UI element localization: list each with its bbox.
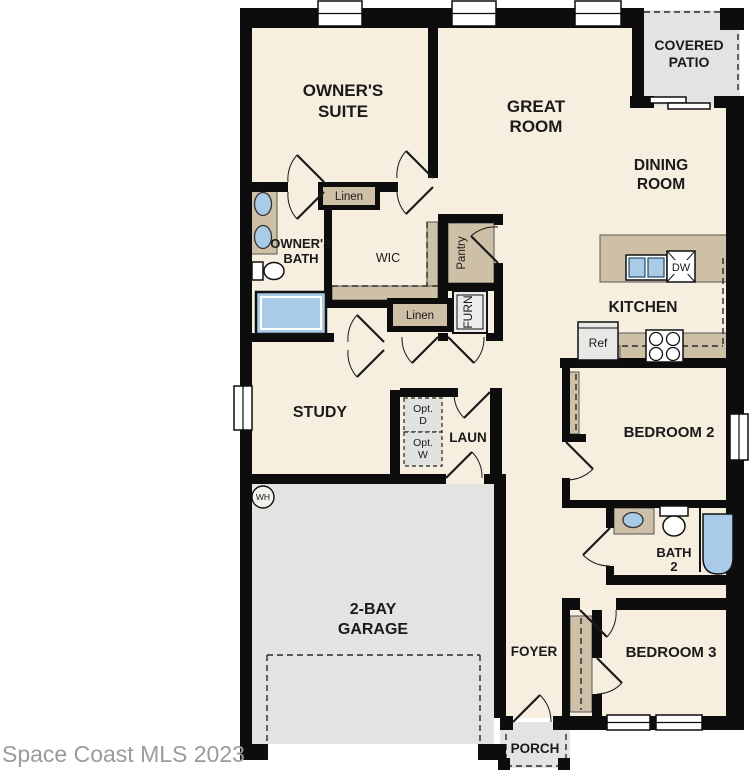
sliding-door [668,103,710,109]
room-label-owners-bath: OWNER'S [270,236,332,251]
dishwasher-label: DW [672,262,691,274]
burner [650,348,663,361]
room-label-bedroom2: BEDROOM 2 [624,424,715,441]
toilet-bowl [264,263,284,280]
room-label-dining-room-2: ROOM [637,176,685,193]
floorplan-image: OWNER'S SUITE GREAT ROOM COVERED PATIO D… [0,0,750,778]
sink [255,193,272,216]
wic-shelf-right [427,222,438,286]
toilet-tank [252,262,263,280]
owners-tub [256,292,326,334]
room-label-pantry: Pantry [456,236,468,269]
linen-bottom-label: Linen [406,310,434,322]
linen-top-label: Linen [335,191,363,203]
room-label-study: STUDY [293,404,348,421]
burner [667,348,680,361]
toilet-bowl [663,516,685,536]
room-label-foyer: FOYER [511,644,558,659]
burner [667,333,680,346]
burner [650,333,663,346]
room-label-garage: 2-BAY [350,601,397,618]
refrigerator-label: Ref [589,336,608,350]
room-label-covered-patio-2: PATIO [669,54,710,70]
room-label-porch: PORCH [511,741,560,756]
furnace-label: FURN [461,295,475,328]
room-label-great-room: GREAT [507,97,566,116]
bath2-tub [703,514,733,574]
room-label-owners-suite-2: SUITE [318,102,368,121]
kitchen-sink-basin [648,258,664,277]
opt-dryer-label: Opt. [413,403,433,415]
room-label-owners-suite: OWNER'S [303,81,384,100]
room-label-garage-2: GARAGE [338,621,409,638]
mls-watermark: Space Coast MLS 2023 [2,741,245,767]
room-label-kitchen: KITCHEN [609,299,678,316]
sink [255,226,272,249]
opt-washer-label: Opt. [413,437,433,449]
opt-washer-label-2: W [418,449,428,461]
room-label-owners-bath-2: BATH [283,251,318,266]
room-label-laundry: LAUN [449,430,487,445]
room-label-bedroom3: BEDROOM 3 [626,644,717,661]
kitchen-sink-basin [629,258,645,277]
room-label-wic: WIC [376,251,400,265]
floorplan-svg: OWNER'S SUITE GREAT ROOM COVERED PATIO D… [0,0,750,778]
room-label-covered-patio: COVERED [654,37,723,53]
room-label-great-room-2: ROOM [510,117,563,136]
wic-shelf-bottom [332,286,438,300]
room-label-bath2: BATH [656,545,691,560]
room-label-dining-room: DINING [634,157,688,174]
opt-dryer-label-2: D [419,415,427,427]
toilet-tank [660,506,688,516]
room-label-bath2-2: 2 [670,559,677,574]
water-heater-label: WH [256,492,270,502]
sliding-door [650,97,686,103]
sink [623,513,643,528]
